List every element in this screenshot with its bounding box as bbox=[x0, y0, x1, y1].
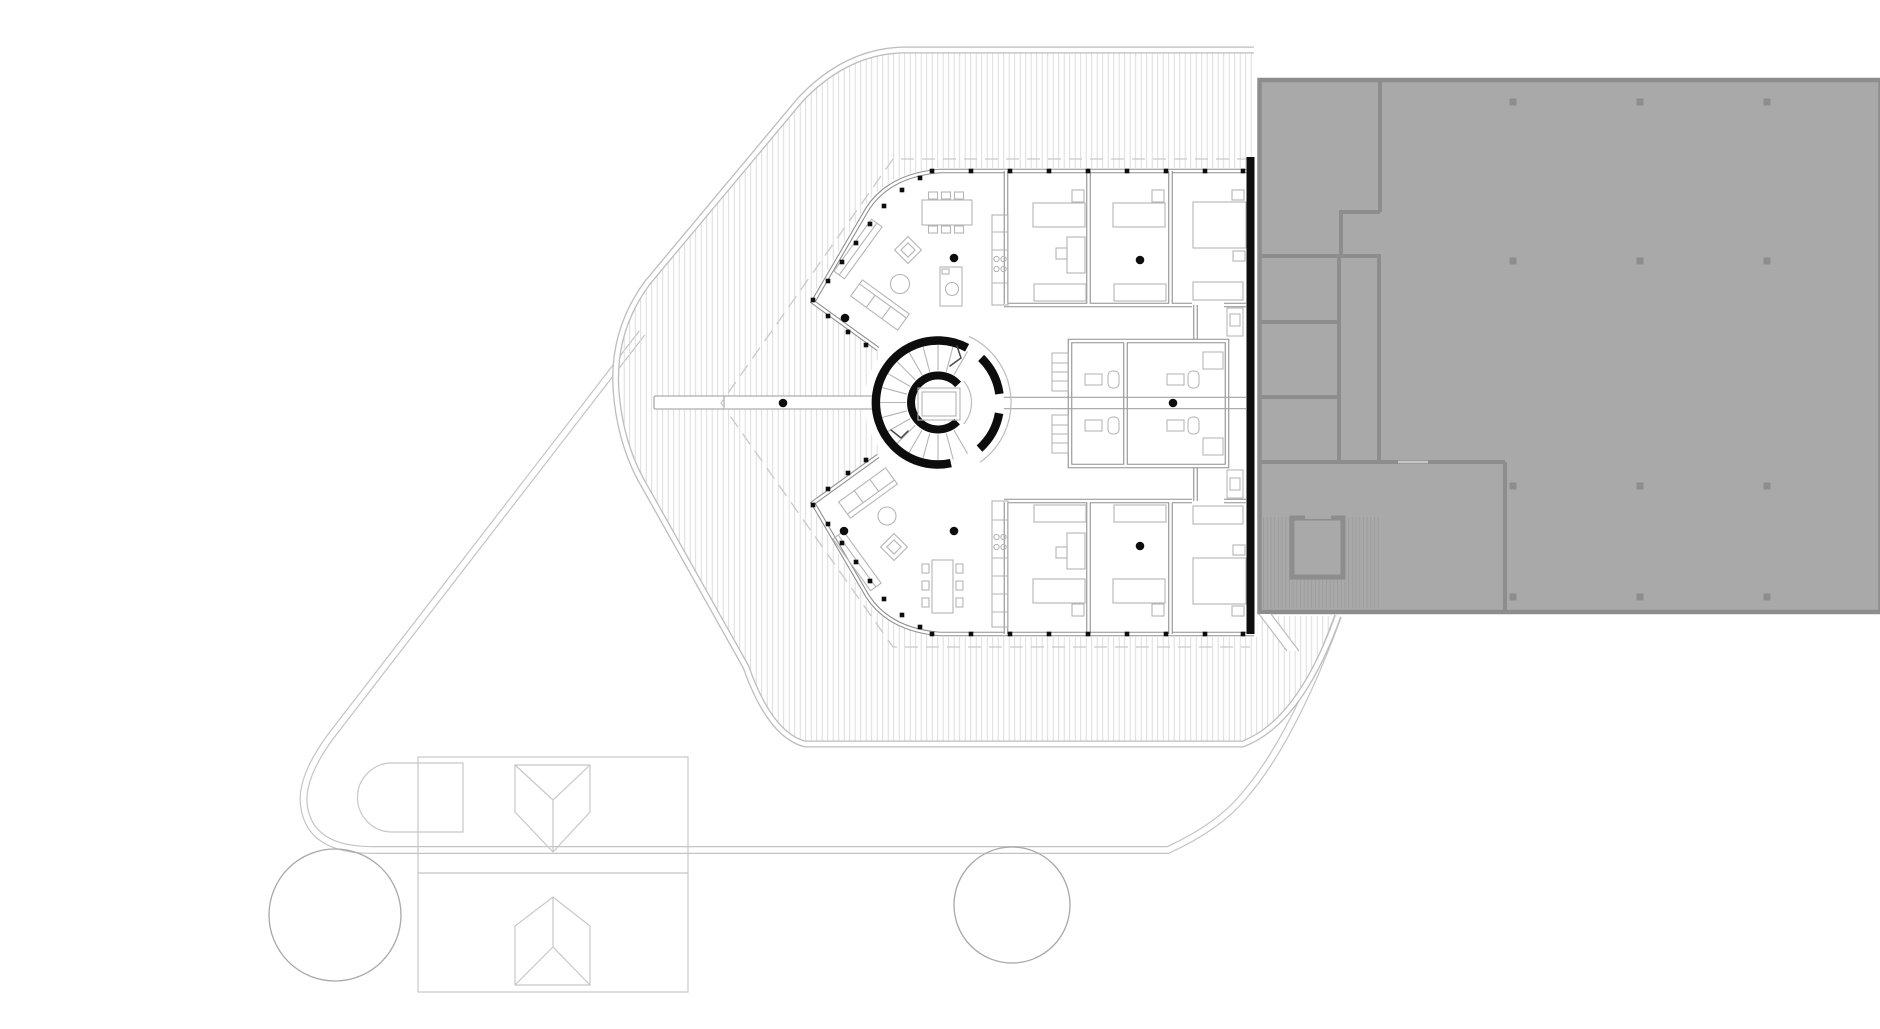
grid-column bbox=[1510, 258, 1517, 265]
column-dot bbox=[1136, 542, 1145, 551]
grid-column bbox=[1764, 99, 1771, 106]
column-dot bbox=[1169, 399, 1178, 408]
grid-column bbox=[1764, 594, 1771, 601]
column-dot bbox=[950, 527, 959, 536]
column-dot bbox=[1136, 256, 1145, 265]
floor-plan-canvas bbox=[0, 0, 1880, 1029]
party-wall bbox=[1247, 157, 1255, 634]
column-dot bbox=[779, 399, 788, 408]
grid-column bbox=[1637, 594, 1644, 601]
grid-column bbox=[1510, 594, 1517, 601]
grid-column bbox=[1510, 483, 1517, 490]
adjacent-building-layer bbox=[1258, 80, 1880, 651]
grid-column bbox=[1764, 483, 1771, 490]
column-dot bbox=[840, 527, 849, 536]
terrace-spine-wall bbox=[654, 396, 878, 409]
grid-column bbox=[1637, 483, 1644, 490]
column-dot bbox=[841, 314, 850, 323]
grid-column bbox=[1637, 258, 1644, 265]
adjacent-stair-core bbox=[1292, 518, 1343, 577]
grid-column bbox=[1637, 99, 1644, 106]
floor-plan-screenshot bbox=[0, 0, 1880, 1029]
grid-column bbox=[1764, 258, 1771, 265]
column-dot bbox=[950, 254, 959, 263]
grid-column bbox=[1510, 99, 1517, 106]
